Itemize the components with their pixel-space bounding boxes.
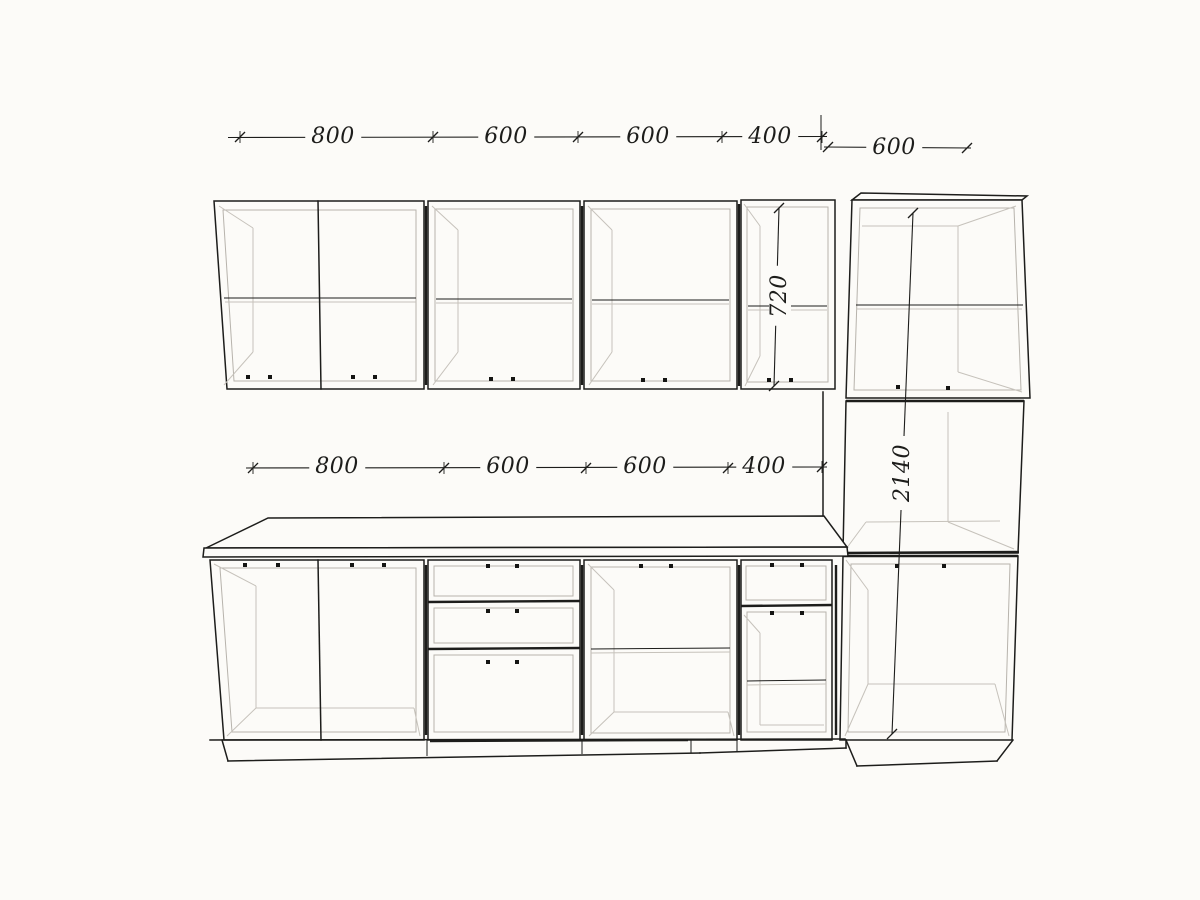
cabinet-line-drawing (0, 0, 1200, 900)
kitchen-elevation-drawing: 800 600 600 400 600 800 600 600 400 720 … (0, 0, 1200, 900)
base-cabinet-600-drawers (428, 560, 580, 740)
tall-unit-upper-cabinet (846, 193, 1030, 398)
base-cabinet-800 (210, 560, 424, 740)
dim-label-base-800: 800 (309, 456, 365, 478)
dim-label-upper-600-b: 600 (620, 126, 676, 148)
base-cabinet-600-open-shelf (584, 560, 737, 740)
tall-unit-plinth (846, 740, 1013, 766)
dim-label-base-400: 400 (736, 456, 792, 478)
dim-label-height-2140: 2140 (892, 436, 914, 510)
dim-label-upper-800: 800 (305, 126, 361, 148)
tall-unit-base-cabinet (840, 556, 1018, 740)
countertop (203, 516, 848, 557)
dim-label-upper-400: 400 (742, 126, 798, 148)
base-cabinet-400-drawer-shelf (741, 560, 832, 740)
wall-cabinet-800 (214, 201, 424, 389)
dim-label-base-600-a: 600 (480, 456, 536, 478)
dim-label-base-600-b: 600 (617, 456, 673, 478)
wall-cabinet-600-b (584, 201, 737, 389)
tall-unit-open-niche (843, 401, 1024, 553)
base-run-plinth (222, 740, 846, 761)
dim-label-tall-unit-600: 600 (866, 137, 922, 159)
dim-label-upper-600-a: 600 (478, 126, 534, 148)
dim-label-height-720: 720 (769, 266, 791, 326)
wall-cabinet-600-a (428, 201, 580, 389)
